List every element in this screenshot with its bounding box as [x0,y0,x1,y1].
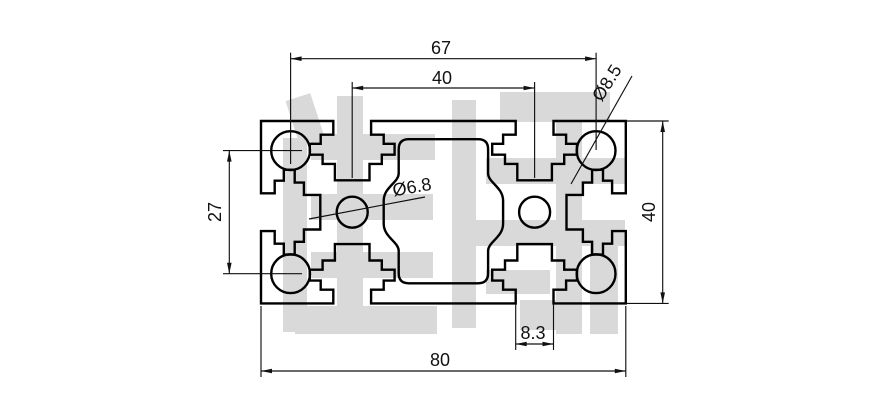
dim-40-top-label: 40 [432,68,452,88]
dim-8-3-label: 8.3 [520,323,545,343]
technical-drawing-canvas: 67 40 Ø8.5 27 40 Ø6.8 [0,0,880,420]
dim-80-label: 80 [430,350,450,370]
dim-27-label: 27 [205,202,225,222]
dim-40-right-label: 40 [639,202,659,222]
dim-67-label: 67 [431,38,451,58]
profile-drawing: 67 40 Ø8.5 27 40 Ø6.8 [0,0,880,420]
